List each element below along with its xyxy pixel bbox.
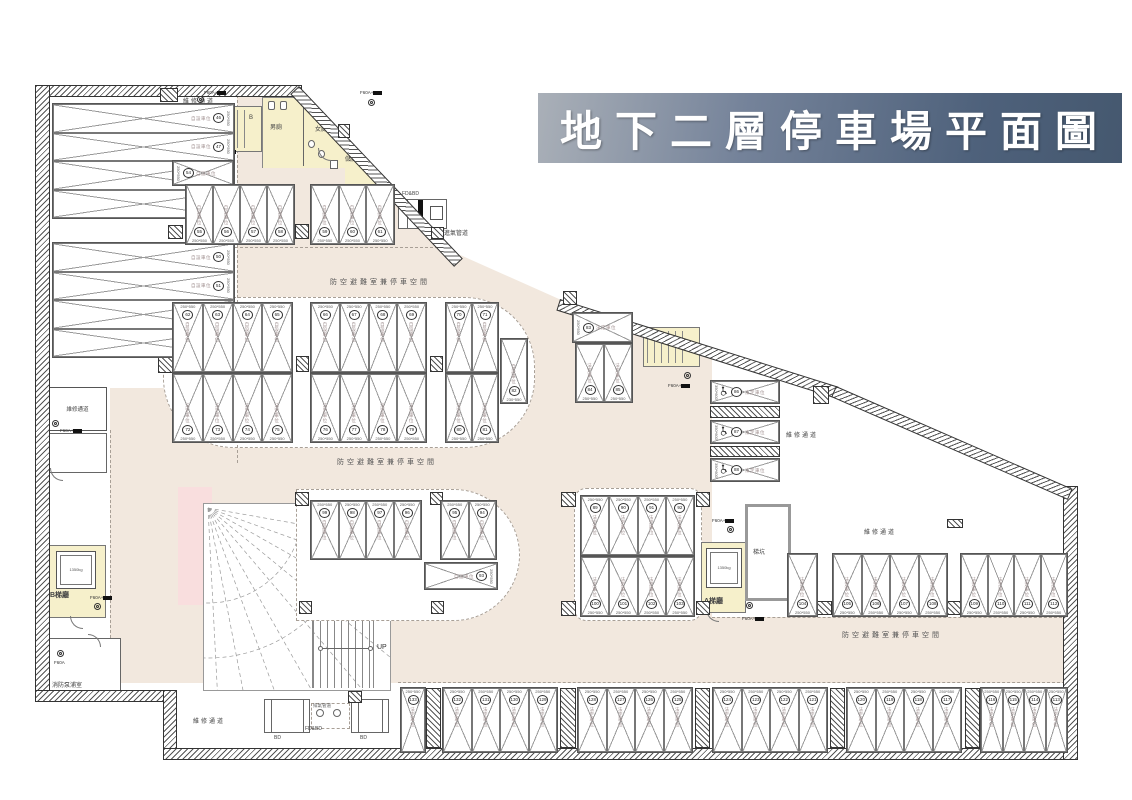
space-number: 126 xyxy=(644,695,655,705)
column xyxy=(431,227,444,239)
column xyxy=(696,601,710,615)
parking-space: 自設車位59250*550 xyxy=(311,185,339,244)
space-number: 120 xyxy=(856,695,867,705)
parking-space: 250*55096自設車位 xyxy=(394,501,422,559)
parking-stall-group: 250*550116法定車位250*550115法定車位250*550114法定… xyxy=(980,687,1068,753)
space-dimension: 250*550 xyxy=(868,610,883,615)
space-dimension: 250*550 xyxy=(347,436,362,441)
space-type-label: 法定車位 xyxy=(725,707,730,727)
parking-stall-group: 250*55070自設車位250*55071自設車位 xyxy=(445,302,499,373)
space-dimension: 250*550 xyxy=(644,610,659,615)
space-dimension: 250*550 xyxy=(642,689,657,694)
parking-space: 250*550129法定車位 xyxy=(529,688,558,752)
ramp-rail-end xyxy=(368,646,373,651)
parking-space: 250*550130法定車位 xyxy=(500,688,529,752)
wheelchair-icon xyxy=(719,423,728,441)
space-dimension: 250*550 xyxy=(616,610,631,615)
space-type-label: 法定車位 xyxy=(887,707,892,727)
space-type-label: 法定車位 xyxy=(753,707,758,727)
column xyxy=(947,519,963,528)
column xyxy=(431,601,444,614)
space-type-label: 法定車位 xyxy=(1051,577,1056,597)
space-number: 130 xyxy=(509,695,520,705)
parking-space: 250*55098自設車位 xyxy=(339,501,367,559)
parking-stall-group: 法定車位105250*550法定車位106250*550法定車位107250*5… xyxy=(832,553,948,617)
parking-space: 法定車位81250*550 xyxy=(472,374,498,442)
parking-space: 法定車位110250*550 xyxy=(988,554,1015,616)
space-number: 128 xyxy=(587,695,598,705)
elevator-b: 1350kg xyxy=(56,551,96,589)
space-number: 79 xyxy=(406,425,417,435)
space-dimension: 250*550 xyxy=(372,502,387,507)
space-dimension: 250*550 xyxy=(318,304,333,309)
space-number: 81 xyxy=(480,425,491,435)
space-number: 103 xyxy=(674,599,685,609)
space-type-label: 自設車位 xyxy=(378,205,383,225)
space-type-label: 自設車位 xyxy=(245,322,250,342)
space-type-label: 法定車位 xyxy=(590,707,595,727)
space-dimension: 250*550 xyxy=(404,436,419,441)
space-number: 113 xyxy=(1051,695,1062,705)
accessible-aisle-hatch xyxy=(710,446,780,457)
space-type-label: 法定車位 xyxy=(745,468,765,473)
space-type-label: 法定車位 xyxy=(1011,707,1016,727)
fire-door-label: F60A+ xyxy=(742,616,764,621)
parking-space: 自設車位56250*550 xyxy=(213,185,240,244)
space-type-label: 自設車位 xyxy=(197,205,202,225)
space-number: 94 xyxy=(477,508,488,518)
space-dimension: 250*550 xyxy=(478,436,493,441)
door-arc xyxy=(88,634,101,647)
space-type-label: 法定車位 xyxy=(483,707,488,727)
space-dimension: 250*550 xyxy=(404,304,419,309)
wall-step xyxy=(163,690,177,756)
fan-icon xyxy=(333,709,341,717)
space-dimension: 250*550 xyxy=(588,497,603,502)
space-number: 122 xyxy=(779,695,790,705)
parking-space: 250*550131法定車位 xyxy=(472,688,501,752)
parking-space: 250*550114法定車位 xyxy=(1024,688,1046,752)
space-dimension: 250*550 xyxy=(317,502,332,507)
space-dimension: 250*550 xyxy=(226,139,231,154)
space-type-label: 法定車位 xyxy=(483,403,488,423)
parking-space: 250*550116法定車位 xyxy=(981,688,1003,752)
shelter-label: 防空避難室兼停車空間 xyxy=(330,277,430,287)
space-dimension: 250*550 xyxy=(795,610,810,615)
elevator-a: 1350kg xyxy=(706,548,742,588)
parking-space: 法定車位102250*550 xyxy=(638,557,666,616)
parking-space: 法定車位104250*550 xyxy=(788,554,817,616)
wall-left xyxy=(35,85,50,697)
parking-space: 350*60088法定車位 xyxy=(711,459,779,481)
parking-space: 250*55092法定車位 xyxy=(666,496,694,555)
parking-space: 自設車位57250*550 xyxy=(240,185,267,244)
door-arc xyxy=(70,616,83,629)
space-number: 83 xyxy=(583,323,594,333)
stair-b-letter: B xyxy=(249,115,253,121)
parking-stall-group: 250*550120法定車位250*550119法定車位250*550118法定… xyxy=(846,687,962,753)
parking-space: 法定車位78250*550 xyxy=(369,374,398,442)
fire-equipment-icon xyxy=(746,602,753,609)
parking-space: 250*55090法定車位 xyxy=(609,496,637,555)
parking-space: 法定車位85250*550 xyxy=(604,344,632,402)
parking-space: 250*550122法定車位 xyxy=(770,688,799,752)
space-type-label: 法定車位 xyxy=(647,707,652,727)
parking-space: 法定車位72250*550 xyxy=(173,374,203,442)
space-number: 99 xyxy=(319,508,330,518)
bd-label: BD xyxy=(274,735,281,741)
fire-equipment-icon xyxy=(52,420,59,427)
column xyxy=(560,688,576,748)
accessible-aisle-hatch xyxy=(710,406,780,418)
space-number: 101 xyxy=(618,599,629,609)
parking-space: 法定車位74250*550 xyxy=(233,374,263,442)
space-type-label: 法定車位 xyxy=(352,403,357,423)
space-type-label: 法定車位 xyxy=(621,515,626,535)
space-number: 132 xyxy=(452,695,463,705)
fire-door-label: F60A+ xyxy=(204,90,226,95)
space-number: 115 xyxy=(1008,695,1019,705)
parking-space: 250*55064自設車位 xyxy=(233,303,263,372)
space-dimension: 250*550 xyxy=(672,497,687,502)
space-dimension: 250*550 xyxy=(210,304,225,309)
space-type-label: 自設車位 xyxy=(457,322,462,342)
space-dimension: 250*550 xyxy=(583,396,598,401)
parking-space: 自設車位58250*550 xyxy=(267,185,294,244)
toilet-fixture xyxy=(280,101,287,110)
parking-space: 法定車位101250*550 xyxy=(609,557,637,616)
space-type-label: 法定車位 xyxy=(457,403,462,423)
parking-space: 自設車位61250*550 xyxy=(366,185,394,244)
space-number: 109 xyxy=(969,599,980,609)
parking-space: 250*550133法定車位 xyxy=(401,688,425,752)
column xyxy=(813,386,829,404)
column xyxy=(695,688,710,748)
space-dimension: 250*550 xyxy=(1049,689,1064,694)
space-dimension: 250*550 xyxy=(375,304,390,309)
exhaust-duct-label: 排氣管道 xyxy=(313,703,331,709)
space-number: 87 xyxy=(731,427,742,437)
space-type-label: 自設車位 xyxy=(196,171,216,176)
space-dimension: 250*550 xyxy=(273,238,288,243)
space-dimension: 250*550 xyxy=(192,238,207,243)
parking-stall-group: 250*55062自設車位250*55063自設車位250*55064自設車位2… xyxy=(172,302,293,373)
space-type-label: 法定車位 xyxy=(745,390,765,395)
parking-space: 法定車位76250*550 xyxy=(311,374,340,442)
space-dimension: 250*550 xyxy=(226,111,231,126)
maintenance-label: 維修通道 xyxy=(193,716,225,725)
parking-stall-group: 350*60087法定車位 xyxy=(710,420,780,444)
wall-bottom-left xyxy=(35,690,173,702)
space-type-label: 法定車位 xyxy=(455,707,460,727)
parking-stall-group: 法定車位84250*550法定車位85250*550 xyxy=(575,343,633,403)
space-number: 84 xyxy=(585,385,596,395)
parking-space: 250*55094自設車位 xyxy=(469,501,497,559)
column xyxy=(348,691,362,703)
space-number: 75 xyxy=(272,425,283,435)
space-number: 95 xyxy=(449,508,460,518)
space-number: 78 xyxy=(377,425,388,435)
aisle-dashed-line xyxy=(712,617,1072,618)
space-dimension: 250*550 xyxy=(447,502,462,507)
fire-equipment-icon xyxy=(684,372,691,379)
space-type-label: 自設車位 xyxy=(191,283,211,288)
space-dimension: 250*550 xyxy=(475,502,490,507)
space-type-label: 自設車位 xyxy=(275,322,280,342)
parking-space: 250*550120法定車位 xyxy=(847,688,876,752)
parking-space: 法定車位105250*550 xyxy=(833,554,862,616)
parking-space: 250*550127法定車位 xyxy=(607,688,636,752)
parking-space: 法定車位107250*550 xyxy=(890,554,919,616)
column xyxy=(296,356,309,372)
parking-stall-group: 自設車位59250*550自設車位60250*550自設車位61250*550 xyxy=(310,184,395,245)
space-number: 131 xyxy=(480,695,491,705)
parking-stall-group: 法定車位109250*550法定車位110250*550法定車位111250*5… xyxy=(960,553,1068,617)
parking-space: 250*55063自設車位 xyxy=(203,303,233,372)
space-type-label: 自設車位 xyxy=(350,520,355,540)
exhaust-unit-left xyxy=(264,699,310,733)
space-dimension: 250*550 xyxy=(180,304,195,309)
space-dimension: 250*550 xyxy=(452,304,467,309)
stair-b-hall-label: B梯廳 xyxy=(50,590,69,600)
space-dimension: 250*550 xyxy=(270,304,285,309)
space-type-label: 法定車位 xyxy=(616,363,621,383)
space-type-label: 法定車位 xyxy=(618,707,623,727)
space-dimension: 250*550 xyxy=(576,320,581,335)
space-type-label: 自設車位 xyxy=(512,364,517,384)
parking-stall-group: 250*550128法定車位250*550127法定車位250*550126法定… xyxy=(577,687,693,753)
parking-space: 自設車位47250*550 xyxy=(53,133,234,162)
parking-stall-group: 250*550132法定車位250*550131法定車位250*550130法定… xyxy=(442,687,558,753)
space-dimension: 250*550 xyxy=(897,610,912,615)
space-type-label: 法定車位 xyxy=(972,577,977,597)
space-dimension: 250*550 xyxy=(345,502,360,507)
column xyxy=(160,88,178,102)
space-type-label: 自設車位 xyxy=(251,205,256,225)
space-number: 127 xyxy=(615,695,626,705)
space-type-label: 法定車位 xyxy=(930,577,935,597)
fdbd-label: FD&BD xyxy=(402,191,419,197)
parking-space: 250*550115法定車位 xyxy=(1003,688,1025,752)
parking-space: 250*55070自設車位 xyxy=(446,303,472,372)
space-number: 96 xyxy=(402,508,413,518)
space-number: 54 xyxy=(183,168,194,178)
space-number: 82 xyxy=(509,386,520,396)
parking-space: 法定車位111250*550 xyxy=(1014,554,1041,616)
space-number: 117 xyxy=(941,695,952,705)
wall-diagonal-3 xyxy=(831,386,1072,500)
space-type-label: 自設車位 xyxy=(191,255,211,260)
space-dimension: 250*550 xyxy=(670,689,685,694)
space-type-label: 法定車位 xyxy=(593,515,598,535)
parking-space: 350*60086法定車位 xyxy=(711,381,779,403)
parking-space: 250*55065自設車位 xyxy=(262,303,292,372)
space-dimension: 250*550 xyxy=(226,278,231,293)
parking-space: 250*550121法定車位 xyxy=(799,688,828,752)
space-dimension: 250*550 xyxy=(176,166,181,181)
space-number: 108 xyxy=(927,599,938,609)
space-type-label: 法定車位 xyxy=(215,403,220,423)
page-title: 地下二層停車場平面圖 xyxy=(550,98,1110,159)
parking-space: 250*550132法定車位 xyxy=(443,688,472,752)
space-number: 77 xyxy=(349,425,360,435)
fire-door-label: F60A+ xyxy=(90,595,112,600)
floor-plan: UP B 男廁 女廁 儲藏 A 1350kg B梯廳 1350kg A梯廳 梯坑… xyxy=(0,0,1132,800)
space-dimension: 250*550 xyxy=(400,502,415,507)
parking-space: 250*550128法定車位 xyxy=(578,688,607,752)
space-dimension: 250*550 xyxy=(535,689,550,694)
parking-space: 法定車位84250*550 xyxy=(576,344,604,402)
parking-space: 自設車位51250*550 xyxy=(53,272,234,301)
space-number: 88 xyxy=(731,465,742,475)
fire-door-label: F60A xyxy=(54,660,65,665)
space-number: 60 xyxy=(347,227,358,237)
fire-door-label: F60A+ xyxy=(360,90,382,95)
space-dimension: 250*550 xyxy=(450,689,465,694)
space-number: 91 xyxy=(646,503,657,513)
fan-icon xyxy=(316,709,324,717)
column xyxy=(830,688,845,748)
maintenance-label: 維修通道 xyxy=(786,430,818,439)
space-dimension: 250*550 xyxy=(347,304,362,309)
shelter-label: 防空避難室兼停車空間 xyxy=(337,457,437,467)
space-dimension: 230*550 xyxy=(507,397,522,402)
parking-space: 法定車位106250*550 xyxy=(862,554,891,616)
space-type-label: 自設車位 xyxy=(352,322,357,342)
space-type-label: 自設車位 xyxy=(191,144,211,149)
space-dimension: 250*550 xyxy=(317,238,332,243)
parking-space: 自設車位46250*550 xyxy=(53,104,234,133)
space-number: 104 xyxy=(797,599,808,609)
parking-space: 法定車位73250*550 xyxy=(203,374,233,442)
space-number: 68 xyxy=(377,310,388,320)
space-dimension: 250*550 xyxy=(854,689,869,694)
column xyxy=(561,492,576,507)
parking-stall-group: 250*550124法定車位250*550123法定車位250*550122法定… xyxy=(712,687,828,753)
column xyxy=(295,224,309,239)
space-type-label: 自設車位 xyxy=(191,116,211,121)
space-number: 112 xyxy=(1048,599,1059,609)
space-number: 106 xyxy=(870,599,881,609)
space-dimension: 250*550 xyxy=(984,689,999,694)
parking-space: 250*550119法定車位 xyxy=(876,688,905,752)
space-dimension: 250*550 xyxy=(406,689,421,694)
space-type-label: 自設車位 xyxy=(322,205,327,225)
space-dimension: 250*550 xyxy=(180,436,195,441)
up-label: UP xyxy=(377,644,387,651)
space-type-label: 法定車位 xyxy=(989,707,994,727)
space-type-label: 自設車位 xyxy=(377,520,382,540)
space-dimension: 250*550 xyxy=(777,689,792,694)
space-number: 89 xyxy=(590,503,601,513)
space-type-label: 法定車位 xyxy=(677,577,682,597)
space-dimension: 250*550 xyxy=(644,497,659,502)
space-type-label: 法定車位 xyxy=(677,515,682,535)
space-type-label: 法定車位 xyxy=(810,707,815,727)
fire-equipment-icon xyxy=(727,526,734,533)
space-type-label: 法定車位 xyxy=(1054,707,1059,727)
space-number: 129 xyxy=(537,695,548,705)
parking-space: 自設車位60250*550 xyxy=(339,185,367,244)
space-number: 97 xyxy=(374,508,385,518)
aisle-dashed-line xyxy=(398,682,1070,683)
space-number: 67 xyxy=(349,310,360,320)
space-type-label: 自設車位 xyxy=(480,520,485,540)
door-arc xyxy=(50,468,63,481)
space-dimension: 250*550 xyxy=(226,250,231,265)
parking-space: 250*55097自設車位 xyxy=(366,501,394,559)
space-dimension: 250*550 xyxy=(318,436,333,441)
space-type-label: 法定車位 xyxy=(902,577,907,597)
space-dimension: 250*550 xyxy=(452,436,467,441)
parking-space: 250*550125法定車位 xyxy=(664,688,693,752)
space-number: 57 xyxy=(248,227,259,237)
space-number: 64 xyxy=(242,310,253,320)
parking-space: 法定車位80250*550 xyxy=(446,374,472,442)
parking-stall-group: 250*55083法定車位 xyxy=(572,312,633,343)
parking-space: 250*550123法定車位 xyxy=(742,688,771,752)
parking-space: 250*550118法定車位 xyxy=(904,688,933,752)
space-number: 59 xyxy=(319,227,330,237)
space-type-label: 法定車位 xyxy=(873,577,878,597)
space-number: 65 xyxy=(272,310,283,320)
parking-space: 法定車位77250*550 xyxy=(340,374,369,442)
toilet-fixture xyxy=(268,101,275,110)
space-type-label: 自設車位 xyxy=(452,520,457,540)
space-dimension: 250*550 xyxy=(882,689,897,694)
parking-space: 自設車位55250*550 xyxy=(186,185,213,244)
space-type-label: 法定車位 xyxy=(944,707,949,727)
corridor-room xyxy=(48,433,107,473)
fire-equipment-icon xyxy=(57,650,64,657)
title-banner: 地下二層停車場平面圖 xyxy=(538,93,1122,163)
parking-stall-group: 250*550133法定車位 xyxy=(400,687,426,753)
space-type-label: 法定車位 xyxy=(649,515,654,535)
parking-space: 自設車位93250*550 xyxy=(425,563,497,589)
bd-label: BD xyxy=(360,735,367,741)
parking-space: 法定車位79250*550 xyxy=(397,374,426,442)
space-number: 58 xyxy=(275,227,286,237)
parking-stall-group: 350*60088法定車位 xyxy=(710,458,780,482)
parking-space: 250*550126法定車位 xyxy=(635,688,664,752)
space-dimension: 250*550 xyxy=(219,238,234,243)
space-number: 74 xyxy=(242,425,253,435)
parking-stall-group: 法定車位72250*550法定車位73250*550法定車位74250*550法… xyxy=(172,373,293,443)
space-dimension: 250*550 xyxy=(925,610,940,615)
parking-stall-group: 自設車位93250*550 xyxy=(424,562,498,590)
column xyxy=(299,601,312,614)
space-type-label: 法定車位 xyxy=(800,577,805,597)
space-dimension: 250*550 xyxy=(373,238,388,243)
space-type-label: 法定車位 xyxy=(675,707,680,727)
parking-stall-group: 350*60086法定車位 xyxy=(710,380,780,404)
parking-space: 250*550117法定車位 xyxy=(933,688,962,752)
parking-stall-group: 自設車位82230*550 xyxy=(500,338,528,404)
space-number: 71 xyxy=(480,310,491,320)
fdbd-label: FD&BD xyxy=(305,726,322,732)
space-type-label: 自設車位 xyxy=(323,322,328,342)
space-type-label: 法定車位 xyxy=(245,403,250,423)
space-number: 105 xyxy=(842,599,853,609)
space-dimension: 250*550 xyxy=(805,689,820,694)
parking-stall-group: 法定車位104250*550 xyxy=(787,553,818,617)
ramp-rail xyxy=(322,648,370,649)
space-dimension: 250*550 xyxy=(967,610,982,615)
space-number: 118 xyxy=(913,695,924,705)
space-number: 55 xyxy=(194,227,205,237)
space-type-label: 法定車位 xyxy=(745,430,765,435)
space-dimension: 250*550 xyxy=(246,238,261,243)
